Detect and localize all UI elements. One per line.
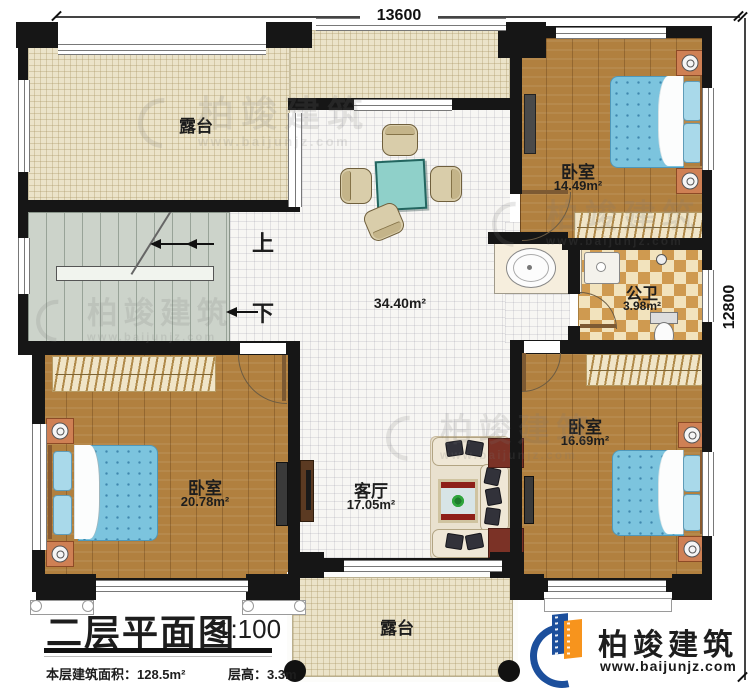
dimension-line-right [744, 18, 746, 680]
dining-table [375, 159, 428, 212]
bed-sheet-fold [658, 76, 684, 166]
stair-down-label: 下 [248, 296, 278, 328]
window [702, 270, 714, 322]
wardrobe-br [586, 354, 704, 386]
wall-bedroom-br-west [510, 340, 522, 578]
pier-cap [544, 598, 672, 612]
window [18, 80, 30, 172]
window [288, 113, 302, 207]
shower-drain-icon [596, 262, 606, 272]
sofa-pillow [465, 440, 484, 458]
bed-sheet-fold [658, 450, 684, 534]
bed-br [612, 450, 704, 534]
floor-plan-canvas: 上 下 [0, 0, 750, 694]
bedroom-br-area: 16.69m² [540, 433, 630, 448]
window [96, 580, 248, 592]
dining-chair-north [382, 124, 418, 156]
brand-logo-building-orange [564, 619, 582, 659]
coffee-table-accent [441, 514, 475, 520]
wall-column [246, 574, 300, 600]
wall-bedroom-tr-south [562, 238, 712, 250]
lamp-icon [684, 541, 701, 558]
title-underline [44, 648, 272, 653]
basin-drain-icon [527, 265, 532, 270]
window [58, 44, 266, 55]
bedroom-bl-area: 20.78m² [160, 494, 250, 509]
sofa-pillow [445, 440, 464, 457]
coffee-table-accent [441, 482, 475, 488]
window [702, 452, 714, 536]
terrace-bottom-label: 露台 [357, 614, 437, 639]
window [548, 580, 666, 592]
pier-cap-dot [294, 600, 306, 612]
stair-up-label: 上 [248, 226, 278, 258]
tv-br [524, 476, 534, 524]
window [702, 88, 714, 170]
wall-column [672, 574, 712, 600]
sofa-pillow [485, 487, 503, 506]
dining-chair-west [340, 168, 372, 204]
dresser-tr [524, 94, 536, 154]
nightstand-bl-top [46, 418, 74, 444]
door-leaf [580, 324, 616, 328]
wall-column [266, 22, 312, 48]
bed-tr [610, 76, 704, 166]
stair-up-arrowhead [150, 239, 161, 249]
sofa-pillow [484, 507, 501, 526]
sofa-pillow [445, 533, 464, 550]
floor-height-text: 层高：3.3m [228, 664, 328, 683]
window [354, 99, 452, 111]
nightstand-tr-bottom [676, 168, 704, 194]
stair-up-arrow-line [152, 243, 214, 245]
window [32, 424, 47, 550]
brand-website: www.baijunjz.com [600, 658, 750, 674]
bed-sheet-fold [74, 445, 100, 539]
terrace-strip-floor [290, 30, 510, 100]
wall-terrace-south [18, 200, 300, 212]
plan-scale: 1:100 [216, 614, 286, 645]
wall-bathroom-west [568, 250, 580, 294]
wall-column [510, 574, 544, 600]
plant-icon [451, 494, 465, 508]
dining-chair-east [430, 166, 462, 202]
round-column [498, 660, 520, 682]
nightstand-bl-bottom [46, 541, 74, 567]
wardrobe-bl [52, 356, 216, 392]
wall-column [36, 574, 96, 600]
bathroom-area: 3.98m² [611, 299, 673, 313]
stair-down-arrowhead [226, 307, 237, 317]
wall-bedroom-bl-east [288, 341, 300, 578]
terrace-top-label: 露台 [156, 112, 236, 137]
nightstand-tr-top [676, 50, 704, 76]
dimension-top-value: 13600 [360, 6, 438, 25]
lamp-icon [52, 546, 69, 563]
sofa-pillow [465, 533, 485, 551]
door-opening [240, 343, 286, 354]
wall-bedroom-tr-west [510, 44, 522, 194]
title-underline-thin [44, 656, 272, 657]
bed-bl [48, 445, 156, 539]
stair-up-arrowhead2 [186, 239, 197, 249]
window [556, 27, 666, 39]
pier-cap-dot [30, 600, 42, 612]
shower-head-icon [656, 254, 667, 265]
floor-area-text: 本层建筑面积：128.5m² [46, 664, 222, 683]
living-room-area: 17.05m² [326, 497, 416, 512]
window [18, 238, 30, 294]
bed-pillow [53, 451, 72, 491]
sliding-door [344, 560, 502, 572]
dimension-right-value: 12800 [720, 265, 740, 349]
lamp-icon [682, 173, 699, 190]
door-opening [524, 341, 560, 353]
brand-logo: 柏竣建筑 www.baijunjz.com [528, 612, 748, 682]
lamp-icon [52, 423, 69, 440]
hall-area-label: 34.40m² [355, 295, 445, 311]
bedroom-tr-area: 14.49m² [533, 178, 623, 193]
bed-headboard [48, 445, 52, 539]
door-leaf [282, 355, 286, 401]
door-leaf [522, 353, 526, 391]
tv-living [306, 470, 311, 510]
lamp-icon [682, 55, 699, 72]
lamp-icon [684, 427, 701, 444]
bed-pillow [53, 495, 72, 535]
tv-bl [276, 462, 288, 526]
